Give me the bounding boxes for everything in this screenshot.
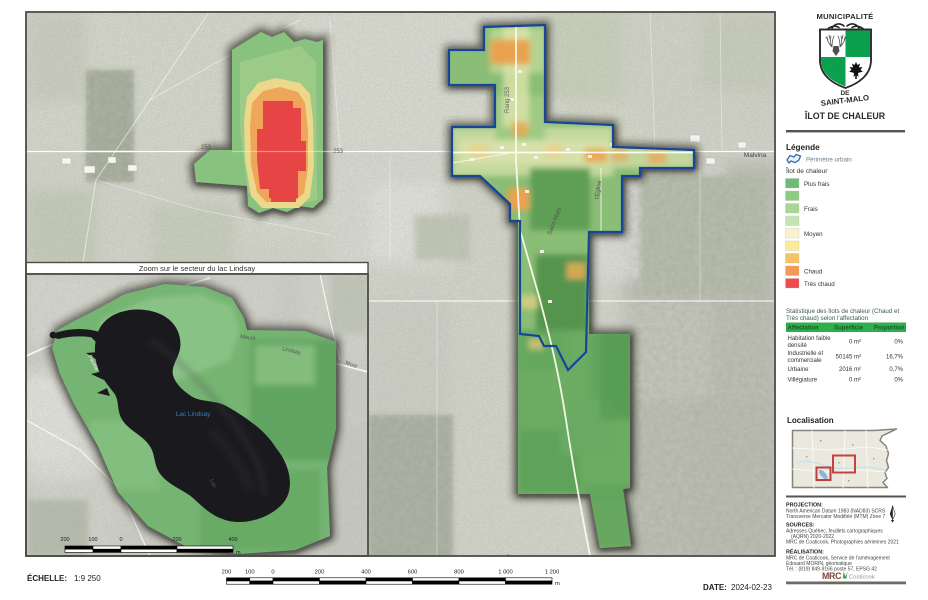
svg-text:200: 200: [315, 570, 325, 576]
svg-text:Coaticook: Coaticook: [849, 575, 875, 581]
svg-text:Industrielle et: Industrielle et: [788, 351, 824, 357]
svg-text:200: 200: [222, 570, 232, 576]
svg-text:1 000: 1 000: [498, 570, 513, 576]
svg-text:253: 253: [201, 145, 212, 151]
svg-text:Îlot de chaleur: Îlot de chaleur: [785, 166, 828, 175]
svg-text:253: 253: [333, 149, 344, 155]
svg-text:100: 100: [88, 537, 97, 543]
svg-text:400: 400: [361, 570, 371, 576]
svg-text:Zoom sur le secteur du lac Lin: Zoom sur le secteur du lac Lindsay: [139, 264, 256, 273]
svg-text:600: 600: [408, 570, 418, 576]
svg-text:ÎLOT DE CHALEUR: ÎLOT DE CHALEUR: [804, 110, 886, 121]
svg-text:Moyen: Moyen: [804, 231, 823, 238]
svg-text:MRC de Coaticook, Photographie: MRC de Coaticook, Photographies aérienne…: [786, 540, 899, 546]
svg-text:Villégiature: Villégiature: [788, 378, 818, 384]
svg-text:DATE:: DATE:: [703, 583, 727, 592]
svg-text:Affectation: Affectation: [788, 326, 820, 332]
svg-text:MUNICIPALITÉ: MUNICIPALITÉ: [816, 12, 873, 21]
svg-text:800: 800: [454, 570, 464, 576]
svg-text:0: 0: [119, 537, 122, 543]
svg-text:0%: 0%: [894, 340, 903, 346]
svg-text:50145 m²: 50145 m²: [836, 355, 861, 361]
svg-text:0,7%: 0,7%: [889, 367, 903, 373]
svg-text:2016 m²: 2016 m²: [839, 367, 861, 373]
svg-text:400: 400: [228, 537, 237, 543]
svg-text:Légende: Légende: [786, 143, 820, 152]
svg-text:Frais: Frais: [804, 206, 818, 213]
svg-text:m: m: [555, 581, 560, 587]
svg-text:Très chaud) selon l'affectatio: Très chaud) selon l'affectation: [786, 315, 869, 322]
svg-text:Plus frais: Plus frais: [804, 181, 829, 188]
svg-text:1 200: 1 200: [545, 570, 560, 576]
svg-text:100: 100: [245, 570, 255, 576]
svg-text:Localisation: Localisation: [787, 416, 834, 425]
svg-text:RÉALISATION:: RÉALISATION:: [786, 548, 824, 556]
svg-text:0: 0: [271, 570, 274, 576]
svg-text:densité: densité: [788, 343, 808, 349]
svg-text:Habitation faible: Habitation faible: [788, 336, 832, 342]
svg-text:Transverse Mercator Modifiée (: Transverse Mercator Modifiée (MTM) Zone …: [786, 514, 886, 520]
svg-text:Périmètre urbain: Périmètre urbain: [806, 157, 852, 164]
svg-text:Rang 253: Rang 253: [505, 86, 511, 113]
svg-text:Urbaine: Urbaine: [788, 367, 810, 373]
svg-text:16,7%: 16,7%: [886, 355, 904, 361]
svg-text:ÉCHELLE:: ÉCHELLE:: [27, 574, 67, 583]
svg-text:Superficie: Superficie: [834, 326, 864, 332]
svg-text:Statistique des îlots de chale: Statistique des îlots de chaleur (Chaud …: [786, 308, 899, 315]
svg-text:Malvina: Malvina: [744, 152, 767, 159]
svg-text:0%: 0%: [894, 378, 903, 384]
svg-text:1:9 250: 1:9 250: [74, 574, 101, 583]
svg-text:2024-02-23: 2024-02-23: [731, 583, 772, 592]
svg-text:Très chaud: Très chaud: [804, 281, 835, 288]
svg-text:Lac Lindsay: Lac Lindsay: [176, 411, 211, 418]
svg-text:m: m: [236, 550, 241, 556]
svg-text:commerciale: commerciale: [788, 358, 823, 364]
svg-text:Proportion: Proportion: [874, 326, 905, 332]
svg-text:0 m²: 0 m²: [849, 340, 861, 346]
svg-text:MRC: MRC: [822, 571, 842, 581]
svg-text:0 m²: 0 m²: [849, 378, 861, 384]
svg-text:Chaud: Chaud: [804, 269, 823, 276]
svg-text:200: 200: [172, 537, 181, 543]
svg-text:200: 200: [60, 537, 69, 543]
